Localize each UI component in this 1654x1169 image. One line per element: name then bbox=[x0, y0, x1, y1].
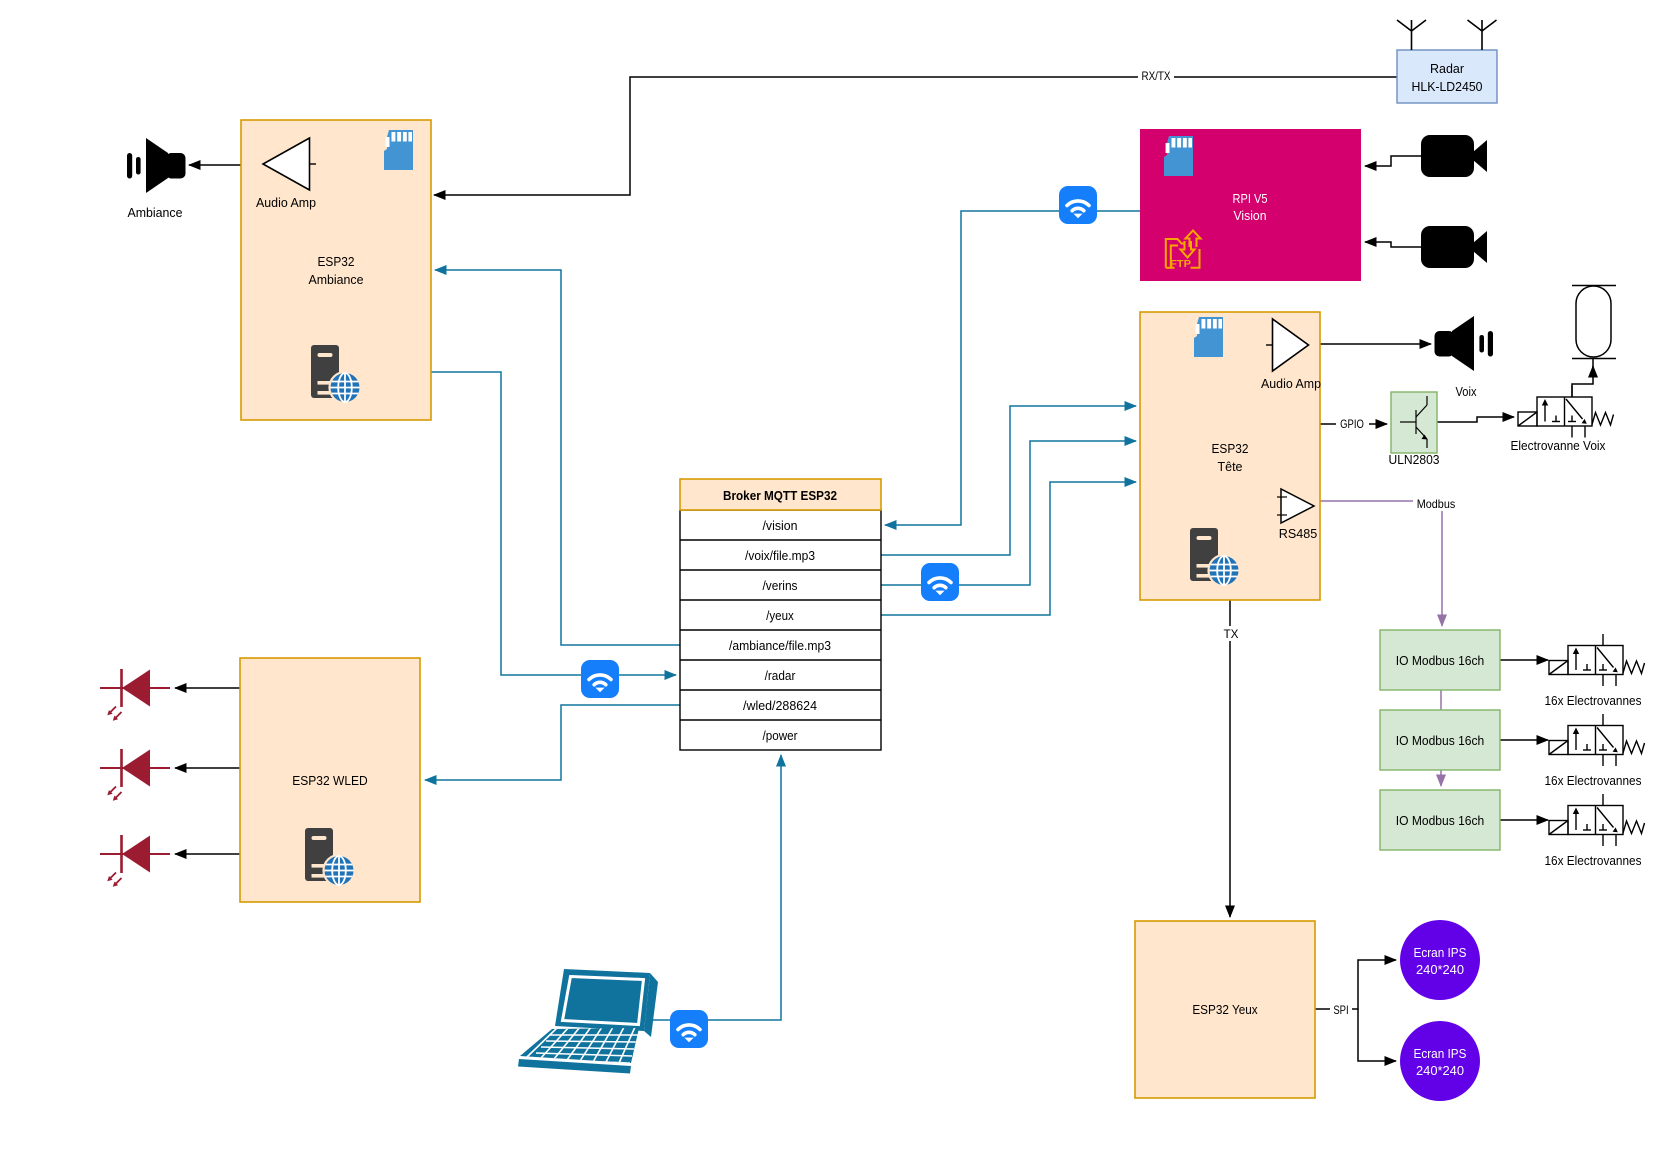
svg-text:TX: TX bbox=[1224, 627, 1239, 641]
svg-text:SPI: SPI bbox=[1333, 1003, 1348, 1017]
svg-text:IO Modbus 16ch: IO Modbus 16ch bbox=[1396, 813, 1485, 828]
svg-text:240*240: 240*240 bbox=[1416, 1063, 1464, 1078]
svg-text:Ecran IPS: Ecran IPS bbox=[1414, 1046, 1467, 1061]
svg-text:/voix/file.mp3: /voix/file.mp3 bbox=[745, 548, 815, 563]
svg-text:/verins: /verins bbox=[763, 578, 798, 593]
svg-text:RX/TX: RX/TX bbox=[1142, 69, 1171, 83]
svg-text:240*240: 240*240 bbox=[1416, 962, 1464, 977]
svg-text:ESP32 WLED: ESP32 WLED bbox=[292, 773, 368, 788]
svg-text:ESP32: ESP32 bbox=[1212, 441, 1249, 456]
svg-text:/radar: /radar bbox=[765, 668, 796, 683]
svg-text:Modbus: Modbus bbox=[1417, 497, 1456, 511]
svg-text:16x Electrovannes: 16x Electrovannes bbox=[1545, 693, 1642, 708]
svg-text:Electrovanne Voix: Electrovanne Voix bbox=[1511, 438, 1606, 453]
svg-text:RS485: RS485 bbox=[1279, 526, 1318, 541]
svg-text:16x Electrovannes: 16x Electrovannes bbox=[1545, 773, 1642, 788]
svg-text:Vision: Vision bbox=[1234, 208, 1267, 223]
svg-text:RPI V5: RPI V5 bbox=[1233, 191, 1268, 206]
svg-text:ULN2803: ULN2803 bbox=[1389, 452, 1440, 467]
svg-text:HLK-LD2450: HLK-LD2450 bbox=[1412, 79, 1483, 94]
svg-text:/vision: /vision bbox=[763, 518, 798, 533]
svg-text:/wled/288624: /wled/288624 bbox=[743, 698, 817, 713]
svg-text:Ecran IPS: Ecran IPS bbox=[1414, 945, 1467, 960]
svg-text:GPIO: GPIO bbox=[1340, 417, 1364, 431]
svg-text:Ambiance: Ambiance bbox=[128, 205, 183, 220]
svg-text:/yeux: /yeux bbox=[766, 608, 794, 623]
svg-text:IO Modbus 16ch: IO Modbus 16ch bbox=[1396, 653, 1485, 668]
svg-text:Radar: Radar bbox=[1430, 61, 1465, 76]
svg-text:ESP32 Yeux: ESP32 Yeux bbox=[1192, 1002, 1258, 1017]
svg-text:Audio Amp: Audio Amp bbox=[256, 195, 316, 210]
svg-text:16x Electrovannes: 16x Electrovannes bbox=[1545, 853, 1642, 868]
svg-text:/power: /power bbox=[763, 728, 799, 743]
svg-text:Broker MQTT ESP32: Broker MQTT ESP32 bbox=[723, 488, 837, 503]
svg-text:/ambiance/file.mp3: /ambiance/file.mp3 bbox=[729, 638, 831, 653]
svg-text:Voix: Voix bbox=[1456, 384, 1477, 399]
svg-text:FTP: FTP bbox=[1170, 258, 1191, 270]
svg-text:Audio Amp: Audio Amp bbox=[1261, 376, 1321, 391]
svg-text:Ambiance: Ambiance bbox=[309, 272, 364, 287]
svg-text:ESP32: ESP32 bbox=[318, 254, 355, 269]
svg-text:IO Modbus 16ch: IO Modbus 16ch bbox=[1396, 733, 1485, 748]
svg-text:Tête: Tête bbox=[1218, 459, 1243, 474]
